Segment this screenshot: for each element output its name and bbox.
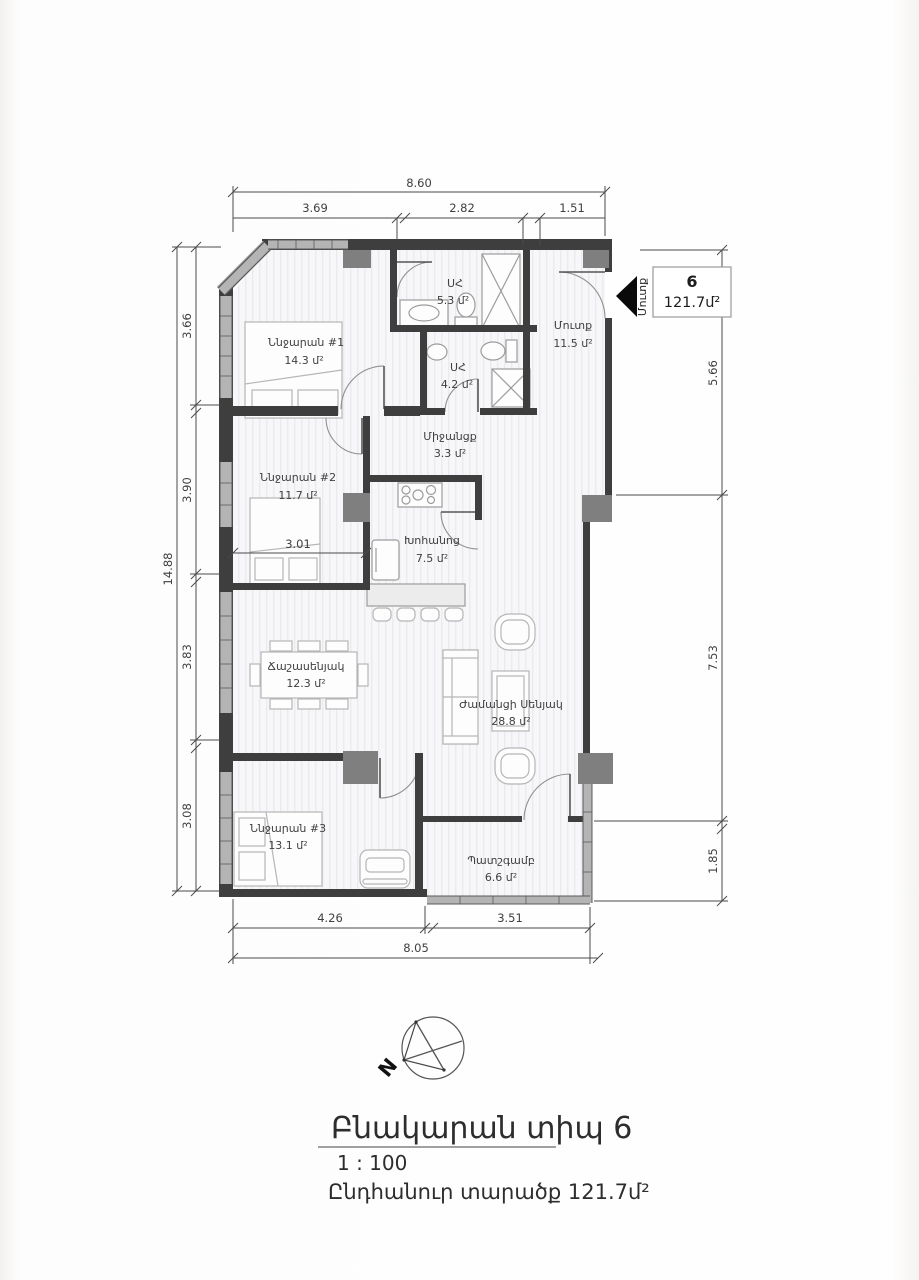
- title-block: Բնակարան տիպ 6 1 : 100 Ընդհանուր տարածք …: [318, 1111, 650, 1204]
- column-right-mid: [582, 495, 612, 522]
- desk-bedroom3: [360, 850, 410, 888]
- window-top: [268, 240, 348, 249]
- entry-marker-label: Մուտք: [636, 278, 649, 316]
- dim-bottom-2: 3.51: [497, 911, 523, 925]
- unit-info-box: 6 121.7մ²: [653, 267, 731, 317]
- plan-scale: 1 : 100: [337, 1151, 407, 1175]
- balcony-label: Պատշգամբ: [467, 854, 535, 867]
- compass: N: [373, 1017, 464, 1082]
- plan-total-area: Ընդհանուր տարածք 121.7մ²: [328, 1180, 650, 1204]
- sofa: [443, 650, 478, 744]
- bedroom1-label: Ննջարան #1: [268, 336, 344, 349]
- hall-label: Մուտք: [554, 319, 592, 332]
- armchair-bottom: [495, 748, 535, 784]
- bedroom2-label: Ննջարան #2: [260, 471, 336, 484]
- dining-label: Ճաշասենյակ: [268, 660, 345, 673]
- bath2-label: ՍՀ: [450, 361, 466, 374]
- window-left-2: [220, 462, 232, 527]
- bath2-sink: [427, 344, 447, 360]
- living-label: Ժամանցի Սենյակ: [459, 698, 563, 711]
- dim-bottom-overall: 8.05: [403, 941, 429, 955]
- bedroom2-area: 11.7 մ²: [278, 489, 317, 502]
- bedroom3-label: Ննջարան #3: [250, 822, 326, 835]
- armchair-top: [495, 614, 535, 650]
- unit-area: 121.7մ²: [664, 295, 721, 311]
- bath2-area: 4.2 մ²: [441, 378, 473, 391]
- bath1-area: 5.3 մ²: [437, 294, 469, 307]
- plan-title: Բնակարան տիպ 6: [331, 1111, 632, 1146]
- window-left-4: [220, 772, 232, 884]
- hall-area: 11.5 մ²: [553, 337, 592, 350]
- bedroom1-area: 14.3 մ²: [284, 354, 323, 367]
- corridor-area: 3.3 մ²: [434, 447, 466, 460]
- dim-right-1: 5.66: [706, 360, 720, 386]
- dim-left-overall: 14.88: [161, 553, 175, 586]
- window-left-1: [220, 296, 232, 398]
- unit-number: 6: [686, 272, 697, 291]
- column-kitchen-left: [343, 493, 370, 522]
- dim-left-3: 3.83: [180, 644, 194, 670]
- window-balcony-right: [583, 784, 592, 903]
- dim-right-3: 1.85: [706, 848, 720, 874]
- entry-arrow-icon: [616, 276, 637, 317]
- dim-left-1: 3.66: [180, 313, 194, 339]
- kitchen-area: 7.5 մ²: [416, 552, 448, 565]
- dim-bottom-1: 4.26: [317, 911, 343, 925]
- dining-area: 12.3 մ²: [286, 677, 325, 690]
- column-right-lower: [578, 753, 613, 784]
- window-left-3: [220, 592, 232, 713]
- kitchen-label: Խոհանոց: [404, 534, 460, 547]
- dim-left-4: 3.08: [180, 803, 194, 829]
- column-top-right: [583, 250, 609, 268]
- bath1-shower: [482, 254, 520, 328]
- entry-marker: Մուտք: [616, 276, 649, 317]
- compass-circle: [402, 1017, 464, 1079]
- dim-top-2: 2.82: [449, 201, 475, 215]
- column-top-middle: [343, 250, 371, 268]
- balcony-area: 6.6 մ²: [485, 871, 517, 884]
- living-area: 28.8 մ²: [491, 715, 530, 728]
- corridor-label: Միջանցք: [423, 430, 477, 443]
- kitchen-stove: [398, 483, 442, 507]
- column-bedroom3: [343, 751, 378, 784]
- dim-right-2: 7.53: [706, 645, 720, 671]
- dim-top-1: 3.69: [302, 201, 328, 215]
- bath2-toilet: [481, 340, 517, 362]
- kitchen-fridge: [372, 540, 399, 580]
- bedroom3-area: 13.1 մ²: [268, 839, 307, 852]
- dim-interior-1: 3.01: [285, 537, 311, 551]
- dim-top-3: 1.51: [559, 201, 585, 215]
- dim-left-2: 3.90: [180, 477, 194, 503]
- dim-top-overall: 8.60: [406, 176, 432, 190]
- compass-north-label: N: [373, 1053, 402, 1081]
- floor-plan-drawing: Ննջարան #1 14.3 մ² ՍՀ 5.3 մ² Մուտք 11.5 …: [0, 0, 919, 1280]
- window-balcony-bottom: [427, 896, 590, 904]
- bath1-label: ՍՀ: [447, 277, 463, 290]
- floor-plan-sheet: Ննջարան #1 14.3 մ² ՍՀ 5.3 մ² Մուտք 11.5 …: [0, 0, 919, 1280]
